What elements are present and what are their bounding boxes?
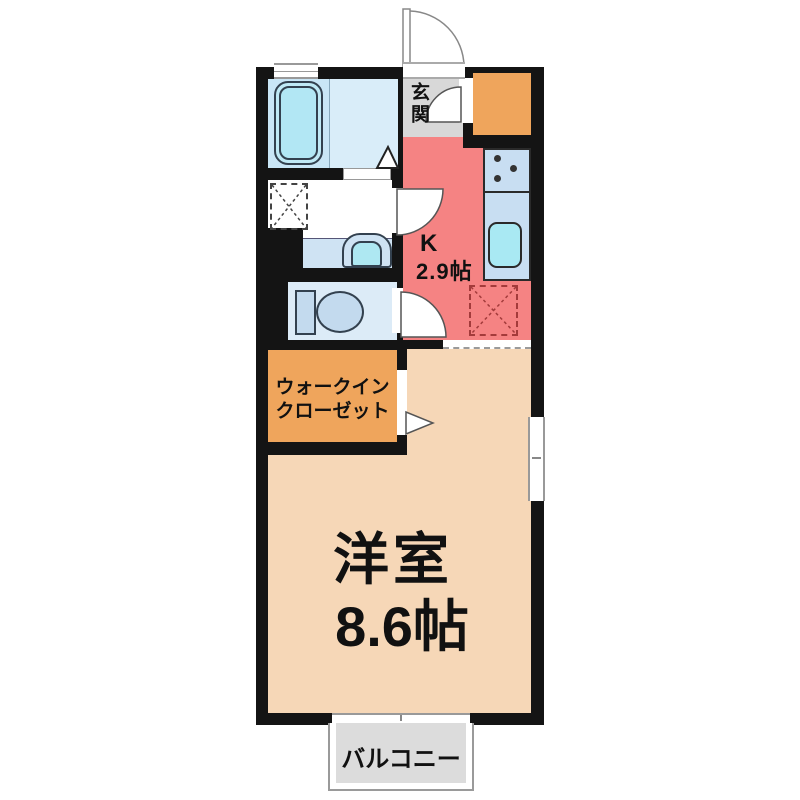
bathroom-door — [343, 168, 391, 180]
genkan-label: 玄関 — [405, 82, 432, 126]
refrigerator-space — [469, 285, 518, 336]
toilet-tank — [295, 290, 316, 335]
kitchen-sink — [488, 222, 522, 268]
genkan-door-gap — [459, 78, 473, 123]
entrance-door-arc — [410, 11, 464, 66]
floor-plan: 玄関 K 2.9帖 ウォークイン クローゼット 洋室 8.6帖 バルコニー — [0, 0, 800, 800]
kitchen-room-opening — [443, 340, 531, 349]
main-room-side-window — [528, 417, 545, 501]
washroom-door-gap — [392, 188, 403, 233]
stove-burner-icon — [510, 165, 517, 172]
kitchen-size-label: 2.9帖 — [416, 254, 473, 286]
stove-burner-icon — [494, 175, 501, 182]
main-room-size-label: 8.6帖 — [268, 582, 536, 663]
shoe-cabinet — [473, 73, 531, 135]
entrance-opening — [403, 62, 465, 79]
bathroom-window — [274, 63, 318, 79]
washing-machine-space — [270, 183, 308, 230]
stove-counter-divider — [483, 191, 531, 193]
balcony-label: バルコニー — [336, 739, 466, 774]
bathtub-inner — [279, 86, 318, 160]
toilet-door-gap — [392, 288, 403, 333]
closet-label-line2: クローゼット — [268, 396, 397, 423]
washbasin-bowl — [351, 241, 382, 267]
stove-burner-icon — [494, 155, 501, 162]
wall-corner-block — [256, 228, 303, 282]
closet-label-line1: ウォークイン — [268, 372, 397, 399]
toilet-bowl — [316, 291, 364, 333]
closet-door-gap — [397, 370, 407, 435]
entrance-door-leaf — [403, 9, 410, 67]
